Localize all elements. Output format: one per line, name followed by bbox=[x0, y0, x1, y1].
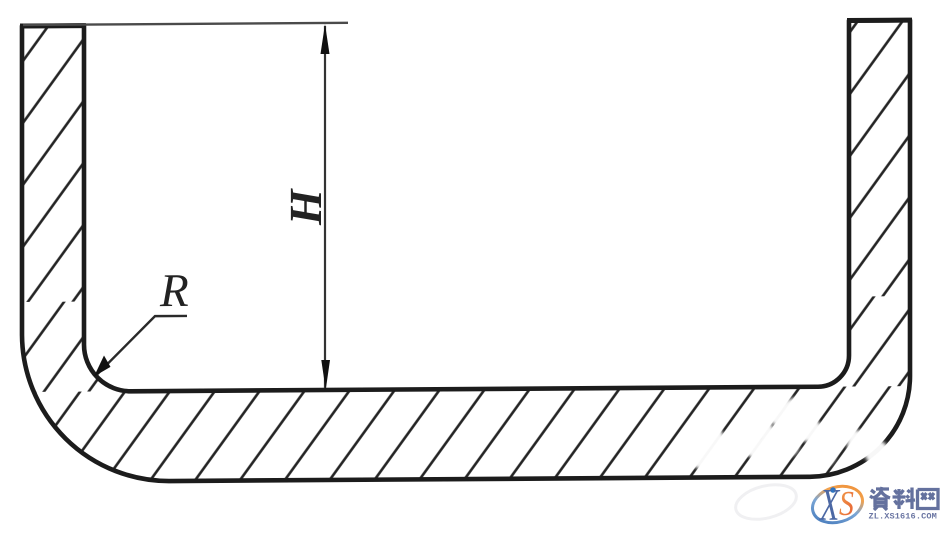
svg-text:X: X bbox=[818, 481, 840, 528]
svg-text:ZL.XS1616.COM: ZL.XS1616.COM bbox=[869, 512, 937, 522]
svg-text:S: S bbox=[839, 485, 854, 524]
svg-text:H: H bbox=[280, 188, 331, 226]
svg-text:R: R bbox=[159, 265, 189, 317]
